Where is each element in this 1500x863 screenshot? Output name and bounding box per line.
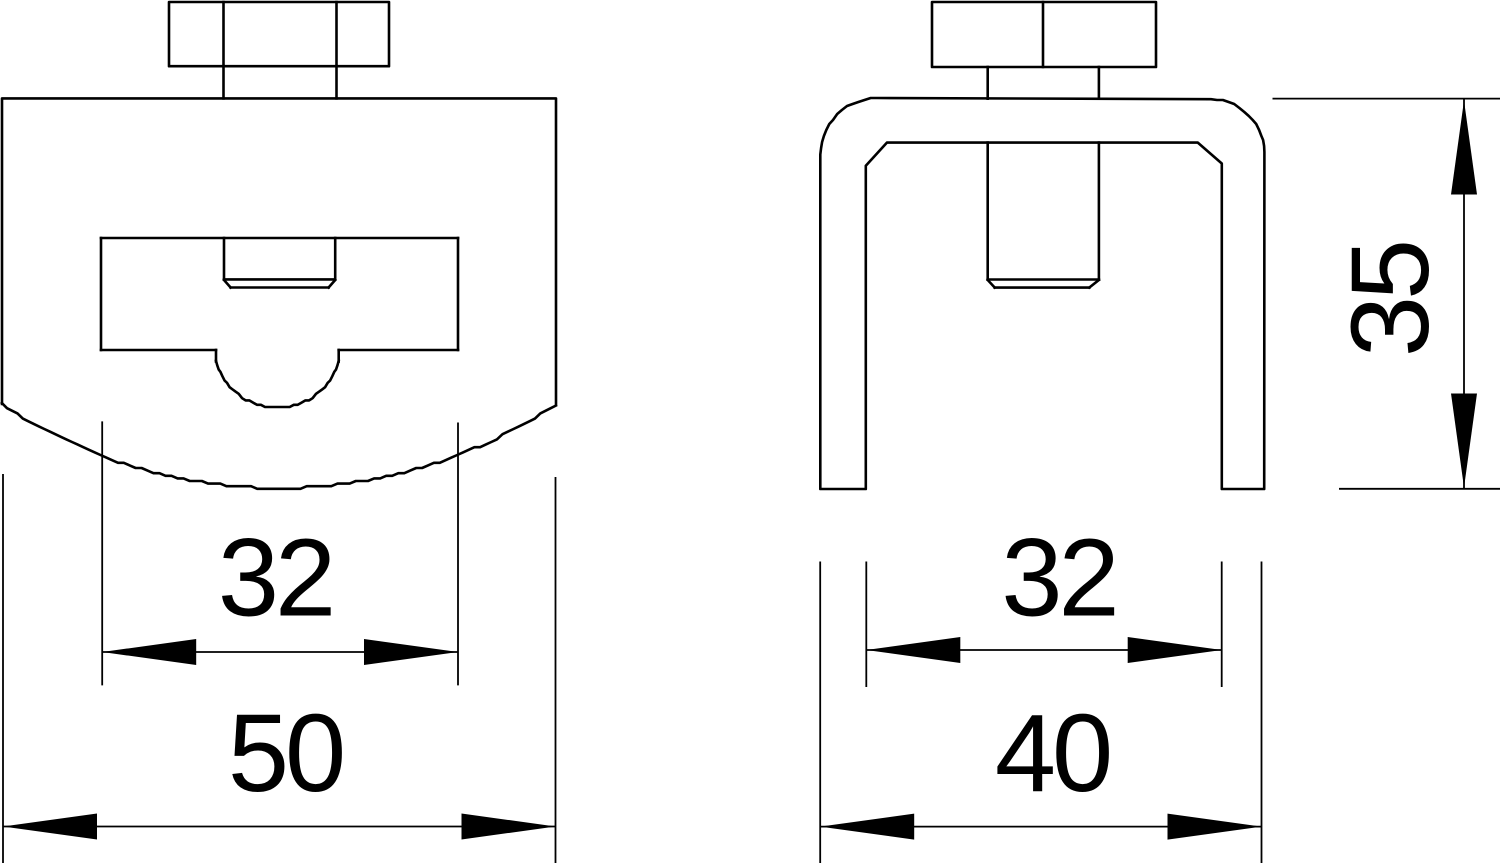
svg-text:35: 35 bbox=[1329, 243, 1452, 357]
svg-text:32: 32 bbox=[1001, 517, 1115, 640]
svg-text:50: 50 bbox=[228, 692, 342, 815]
svg-text:32: 32 bbox=[218, 517, 332, 640]
svg-text:40: 40 bbox=[995, 692, 1109, 815]
